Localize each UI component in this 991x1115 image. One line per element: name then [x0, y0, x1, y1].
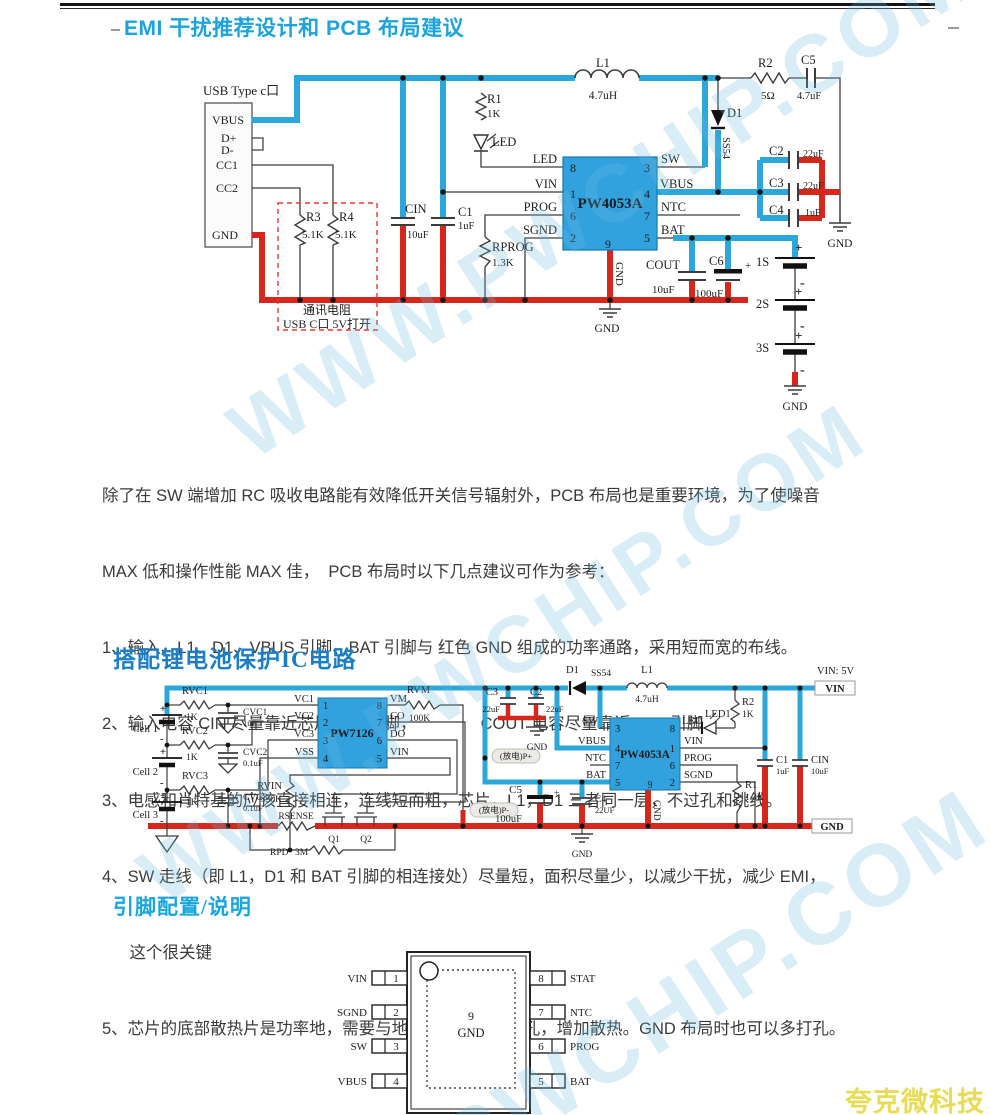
c4-label: C4 [595, 795, 606, 805]
c4-value: 22UF [595, 805, 615, 815]
b1-plus: + [795, 240, 802, 255]
rpd-zigzag [310, 846, 343, 854]
top-rule-thin [60, 8, 935, 9]
r2-value: 5Ω [761, 90, 775, 102]
pin-name-stat: STAT [570, 973, 596, 985]
l1-value: 4.7uH [589, 90, 617, 102]
comm-box-line2: USB C口 5V打开 [283, 317, 371, 331]
pin-label-sgnd: SGND [523, 223, 557, 237]
c1-value: 1uF [458, 221, 475, 232]
pin-number-3: 3 [393, 1041, 399, 1053]
cout-plates [678, 272, 706, 280]
note-line: MAX 低和操作性能 MAX 佳， PCB 布局时以下几点建议可作为参考： [102, 560, 986, 585]
pin-num: 2 [670, 778, 675, 789]
sgnd-pin-label: SGND [684, 770, 713, 781]
d1-value: SS54 [720, 137, 731, 160]
rvc3-label: RVC3 [182, 771, 208, 782]
b3-minus: - [800, 363, 805, 378]
cout-label: COUT [646, 258, 680, 272]
sw-label: SW [582, 716, 598, 727]
led-label: LED [492, 135, 516, 149]
pin-num: 5 [377, 754, 382, 765]
chip-pw7126: PW7126 1 2 3 4 8 7 6 5 [318, 698, 387, 768]
rvc1-value: 1K [186, 713, 198, 723]
cvc2-value: 0.1uF [243, 758, 263, 768]
gnd-label-chip: GND [595, 323, 620, 335]
brand-watermark: 夸克微科技 [845, 1080, 985, 1115]
pin-label-led: LED [533, 152, 557, 166]
battery-3s-label: 3S [756, 341, 769, 355]
gnd9-label: GND [613, 262, 625, 286]
note-line: 除了在 SW 端增加 RC 吸收电路能有效降低开关信号辐射外，PCB 布局也是重… [102, 484, 986, 509]
r2-value: 1K [742, 710, 754, 720]
vss-label: VSS [295, 747, 314, 758]
pin-num: 4 [615, 744, 621, 755]
pin-num: 5 [615, 778, 620, 789]
d1-label: D1 [727, 106, 742, 120]
rvin-zigzag [286, 782, 294, 812]
rpd-value: 3M [295, 848, 309, 858]
c3-label: C3 [769, 176, 784, 190]
pin-configuration-diagram: 9 GND 1 2 3 4 VIN SGND SW VBUS [330, 945, 670, 1115]
pin-name-prog: PROG [570, 1041, 599, 1053]
pin-number-7: 7 [538, 1007, 544, 1019]
right-dash [948, 27, 959, 29]
cvc2-label: CVC2 [243, 748, 268, 758]
l1-label: L1 [641, 665, 653, 676]
r2-label: R2 [742, 697, 754, 708]
rprog-label: RPROG [492, 240, 534, 254]
r4-value: 5.1K [335, 229, 357, 241]
c3-value: 22uF [803, 181, 824, 192]
cell2-label: Cell 2 [133, 767, 158, 778]
c5-plus: + [554, 789, 559, 799]
c6-value: 100uF [695, 288, 723, 300]
c2-label: C2 [769, 144, 784, 158]
datasheet-page: EMI 干扰推荐设计和 PCB 布局建议 USB Type c口 VBUS D+… [0, 0, 991, 1115]
circuit-protection-schematic: PW7126 1 2 3 4 8 7 6 5 PW4053A 3 4 7 5 8… [118, 660, 991, 870]
cell1-label: Cell 1 [133, 724, 158, 735]
r1-zigzag [733, 782, 741, 812]
b2-plus: + [795, 284, 802, 299]
r2-zigzag [731, 700, 739, 722]
d1-diode-icon [572, 681, 586, 695]
cin-value: 10uF [811, 766, 829, 776]
c5-value: 100uF [495, 814, 522, 825]
usb-pin-vbus: VBUS [212, 113, 244, 127]
pin-label-bat: BAT [661, 223, 685, 237]
l1-coil [627, 683, 667, 688]
d1-label: D1 [566, 665, 579, 676]
l1-coil [575, 70, 639, 78]
c3-value: 22uF [483, 704, 501, 714]
bat-label: BAT [586, 770, 606, 781]
rvm-value: 100K [409, 714, 430, 724]
pin-num: 8 [377, 701, 382, 712]
battery-1s-label: 1S [756, 255, 769, 269]
c4-value: 1uF [805, 208, 821, 219]
pad-label: GND [457, 1026, 484, 1040]
chip-pw4053a: PW4053A 8 1 6 2 3 4 7 5 9 [563, 157, 657, 251]
ntc-label: NTC [585, 753, 606, 764]
c1-label: C1 [458, 205, 473, 219]
pin-name-vbus: VBUS [338, 1076, 367, 1088]
pin-num-1: 1 [570, 187, 576, 201]
pin-num: 1 [323, 701, 328, 712]
pin-num-9: 9 [648, 780, 653, 791]
r1-label: R1 [745, 780, 757, 791]
pin-label-prog: PROG [524, 200, 557, 214]
pin-number-4: 4 [393, 1076, 399, 1088]
rsense-label: RSENSE [278, 812, 314, 822]
pin-name-ntc: NTC [570, 1007, 592, 1019]
pin-num-5: 5 [644, 231, 650, 245]
cell2-minus: - [160, 778, 164, 789]
vin2-pin-label: VIN [684, 736, 703, 747]
vin-terminal-label: VIN [825, 684, 845, 695]
cout-value: 10uF [652, 284, 675, 296]
pin-label-vbus: VBUS [660, 177, 693, 191]
rprog-zigzag [480, 237, 490, 267]
pin-num: 3 [615, 724, 620, 735]
pin-label-sw: SW [661, 152, 680, 166]
pin-num-2: 2 [570, 231, 576, 245]
vin-pin-label: VIN [390, 747, 409, 758]
led-icon [474, 135, 488, 149]
vin-5v-note: VIN: 5V [817, 666, 854, 677]
left-dash [111, 29, 120, 31]
rvin-label: RVIN [257, 781, 282, 792]
cin-value: 10uF [407, 230, 429, 241]
pin-number-8: 8 [538, 973, 544, 985]
pin-num: 6 [377, 736, 382, 747]
rvin-value: 330K [261, 795, 282, 805]
d1-value: SS54 [591, 669, 611, 679]
r3-value: 5.1K [302, 229, 324, 241]
c1-value: 1uF [776, 766, 790, 776]
vc1-label: VC1 [294, 694, 314, 705]
pad-number: 9 [468, 1009, 474, 1023]
cell1-minus: - [160, 734, 164, 745]
comm-box-line1: 通讯电阻 [303, 303, 351, 317]
l1-label: L1 [596, 56, 610, 70]
r3-label: R3 [306, 210, 321, 224]
usb-pin-gnd: GND [212, 228, 238, 242]
led-pin-label: LED [682, 716, 703, 727]
r1-value: 1K [487, 108, 501, 120]
co-label: CO [390, 711, 405, 722]
c2-value: 22uF [803, 149, 824, 160]
rprog-value: 1.3K [492, 257, 514, 269]
left-pins: 1 2 3 4 VIN SGND SW VBUS [337, 971, 407, 1088]
section-title-pin-config: 引脚配置/说明 [113, 891, 252, 921]
pin-num-4: 4 [644, 187, 650, 201]
r2-label: R2 [758, 56, 773, 70]
c2-value: 22uF [546, 704, 564, 714]
vm-label: VM [390, 694, 408, 705]
rvc2-label: RVC2 [182, 726, 208, 737]
pin-name-vin: VIN [347, 973, 367, 985]
rvm-zigzag [405, 701, 440, 709]
pin-num: 2 [323, 718, 328, 729]
pin-num-9: 9 [605, 237, 611, 251]
c6-label: C6 [709, 254, 724, 268]
led1-icon [704, 722, 716, 734]
pin-name-sw: SW [351, 1041, 368, 1053]
pin-label-ntc: NTC [661, 200, 686, 214]
pin-num: 3 [323, 736, 328, 747]
c1-label: C1 [776, 755, 788, 766]
r4-label: R4 [339, 210, 354, 224]
c4-label: C4 [769, 203, 784, 217]
pin-number-1: 1 [393, 973, 399, 985]
pin-num: 1 [670, 744, 675, 755]
r1-value: 1.3K [745, 793, 764, 803]
pin-label-vin: VIN [535, 177, 557, 191]
r1-label: R1 [487, 92, 502, 106]
prog-pin-label: PROG [684, 753, 712, 764]
pin-num-7: 7 [644, 209, 650, 223]
c6-plus-plate [714, 269, 742, 274]
gnd-label-caps: GND [828, 238, 853, 250]
circuit2-labels: Cell 1 Cell 2 Cell 3 + - + - + - RVC1 1K… [133, 665, 830, 860]
vc3-label: VC3 [294, 729, 314, 740]
pin-num: 4 [323, 754, 329, 765]
cin-label: CIN [405, 202, 427, 216]
vc2-label: VC2 [294, 711, 314, 722]
chip-pw4053a: PW4053A 3 4 7 5 8 1 6 2 9 [610, 718, 680, 791]
rsense-zigzag [278, 822, 315, 830]
pin-number-2: 2 [393, 1007, 399, 1019]
usb-title: USB Type c口 [203, 83, 279, 98]
rpd-label: RPD [270, 848, 289, 858]
c5-value: 4.7uF [797, 91, 821, 102]
pin-num: 7 [377, 718, 382, 729]
cin-plates [391, 218, 415, 225]
pin-num-8: 8 [570, 161, 576, 175]
cin-label: CIN [811, 755, 830, 766]
cell3-label: Cell 3 [133, 810, 158, 821]
section-title-emi: EMI 干扰推荐设计和 PCB 布局建议 [124, 12, 464, 42]
c5-plates [807, 68, 815, 88]
rvc2-value: 1K [186, 753, 198, 763]
c6-plus-sign: + [745, 260, 751, 272]
rvm-label: RVM [407, 685, 431, 696]
usb-pin-cc2: CC2 [216, 181, 238, 195]
b3-plus: + [795, 328, 802, 343]
c5-label: C5 [509, 784, 522, 796]
circuit-emi-pcb-schematic: USB Type c口 VBUS D+ D- CC1 CC2 GND [195, 55, 991, 425]
pin1-marker-icon [420, 962, 438, 980]
cvc1-value: 1uF [243, 718, 257, 728]
gnd-label-caps: GND [527, 743, 548, 753]
pin-name-bat: BAT [570, 1076, 591, 1088]
vbus-label: VBUS [578, 736, 606, 747]
component-symbols [295, 68, 815, 280]
battery-2s-label: 2S [756, 297, 769, 311]
gnd-label-battery: GND [783, 401, 808, 413]
pin-name-sgnd: SGND [337, 1007, 367, 1019]
chip-name: PW7126 [330, 726, 373, 740]
chip-name: PW4053A [578, 196, 643, 212]
r2-zigzag [751, 73, 789, 83]
usb-pin-dminus: D- [221, 143, 234, 157]
c5-label: C5 [801, 55, 816, 67]
pin-number-5: 5 [538, 1076, 544, 1088]
c5-plus-plate [527, 795, 553, 799]
right-pins: 8 7 6 5 STAT NTC PROG BAT [530, 971, 599, 1088]
l1-value: 4.7uH [635, 695, 659, 705]
pin-num: 8 [670, 724, 675, 735]
usb-pin-cc1: CC1 [216, 158, 238, 172]
led1-label: LED1 [705, 709, 731, 720]
gnd9-label: GND [651, 800, 661, 821]
do-label: DO [390, 729, 406, 740]
r1-zigzag [476, 93, 486, 120]
chip-name: PW4053A [620, 749, 671, 761]
pin-num-3: 3 [644, 161, 650, 175]
pin-number-6: 6 [538, 1041, 544, 1053]
rvc1-label: RVC1 [182, 686, 208, 697]
cell3-minus: - [160, 816, 164, 827]
top-rule-thick [60, 3, 935, 6]
gnd-terminal-label: GND [820, 822, 844, 833]
terminals: VIN GND VIN: 5V [812, 666, 855, 833]
cell2-plus: + [160, 747, 166, 758]
rvc3-value: 1K [186, 798, 198, 808]
c1-plates [431, 218, 455, 225]
pin-num-6: 6 [570, 209, 576, 223]
q1-label: Q1 [328, 835, 340, 845]
cvc1-label: CVC1 [243, 708, 268, 718]
c3-label: C3 [486, 687, 498, 698]
pin-num: 7 [615, 761, 620, 772]
d1-diode-icon [711, 110, 725, 126]
cell3-plus: + [160, 791, 166, 802]
q2-label: Q2 [360, 835, 372, 845]
pin-num: 6 [670, 761, 675, 772]
gnd-label-mid: GND [572, 850, 593, 860]
